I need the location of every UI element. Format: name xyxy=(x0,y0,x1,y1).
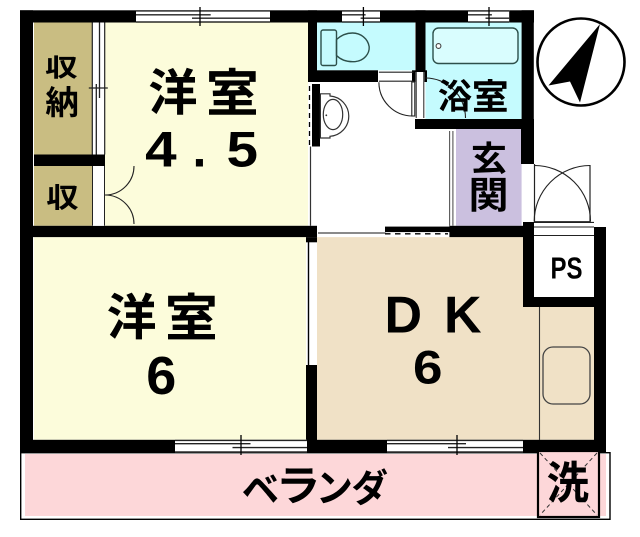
svg-text:.: . xyxy=(193,121,207,177)
svg-text:DK: DK xyxy=(385,286,504,344)
svg-text:4: 4 xyxy=(145,121,177,177)
svg-text:PS: PS xyxy=(551,250,583,285)
svg-text:6: 6 xyxy=(413,340,443,393)
svg-text:6: 6 xyxy=(146,346,176,406)
svg-text:5: 5 xyxy=(227,121,259,177)
